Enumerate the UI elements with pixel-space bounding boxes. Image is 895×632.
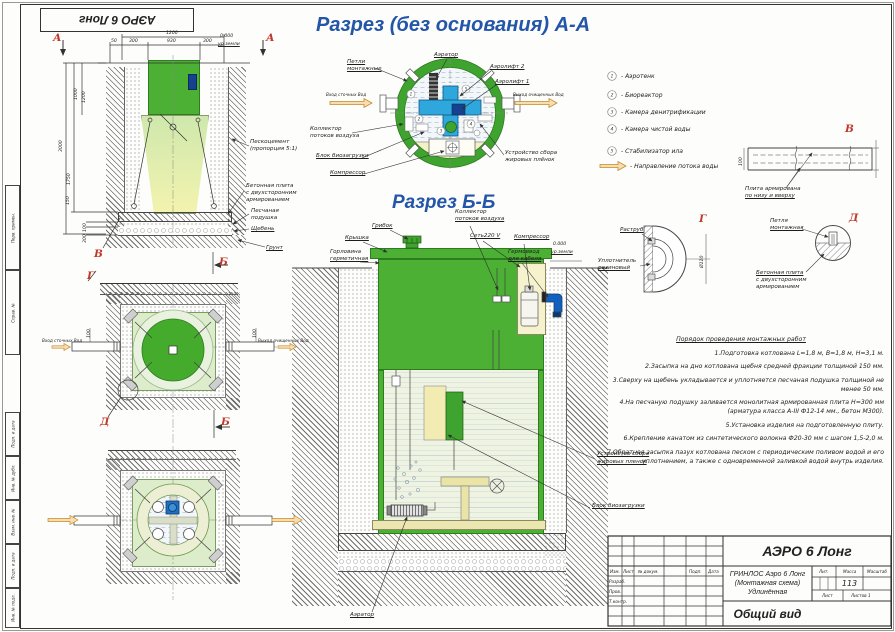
aa-label-bioblock: Блок биозагрузки [316, 153, 369, 160]
elev-dim-930: 930 [167, 39, 176, 45]
note-item: 3.Сверху на щебень укладывается и уплотн… [598, 377, 884, 395]
elev-label-sandcement2: (пропорция 5:1) [250, 146, 297, 153]
aa-label-airlift1: Аэролифт 1 [495, 79, 529, 86]
elev-dim-1200v: 1200 [82, 91, 88, 103]
note-item: 7.Обратная засыпка пазух котлована песко… [598, 449, 884, 467]
aa-label-compressor: Компрессор [330, 170, 365, 177]
svg-text:5: 5 [611, 149, 614, 155]
aa-outlet-label: Выход очищенных Вод [513, 92, 564, 97]
legend-item-4: - Камера чистой воды [621, 126, 690, 134]
detail-mark-v-elev: В [94, 248, 103, 260]
note-item: 1.Подготовка котлована L=1,8 м, B=1,8 м,… [598, 350, 884, 359]
elev-dim-300b: 300 [83, 234, 89, 243]
detail-mark-d: Д [849, 212, 858, 224]
svg-text:4: 4 [611, 127, 614, 133]
title-section-aa: Разрез (без основания) А-А [316, 14, 590, 37]
plan1-dim-100l: 100 [87, 329, 93, 338]
tb-role-razrab: Разраб. [609, 579, 625, 584]
doc-line1: ГРИНЛОС Аэро 6 Лонг [730, 570, 805, 579]
svg-text:1: 1 [410, 92, 413, 97]
elev-dim-1000: 1000 [74, 88, 80, 100]
bb-label-aerator: Аэратор [350, 612, 374, 619]
aa-label-loops1: Петли [347, 59, 365, 66]
elevation-linework [63, 34, 265, 281]
tb-mass-value: 113 [836, 577, 863, 590]
elev-label-cushion1: Песчаная [251, 208, 279, 215]
titleblock-product: АЭРО 6 Лонг [723, 536, 891, 566]
bb-label-lid: Крышка [345, 235, 369, 242]
notes-title: Порядок проведения монтажных работ [598, 336, 884, 345]
view-name: Общий вид [734, 607, 802, 621]
tb-sheets: Листов 1 [851, 593, 871, 598]
tb-head-list: Лист [623, 569, 634, 574]
tb-head-izm: Изм. [610, 569, 620, 574]
elev-dim-300l: 300 [129, 39, 138, 45]
tb-head-data: Дата [708, 569, 719, 574]
detail-v-label1: Плита армирована [745, 186, 801, 193]
svg-text:2: 2 [611, 93, 614, 99]
titleblock-doc: ГРИНЛОС Аэро 6 Лонг (Монтажная схема) Уд… [723, 566, 812, 601]
detail-v-dim100: 100 [739, 157, 745, 166]
elev-label-gravel: Щебень [251, 226, 274, 233]
product-name: АЭРО 6 Лонг [762, 543, 851, 559]
doc-line3: Удлинённая [748, 588, 787, 597]
elev-dim-300r: 300 [203, 39, 212, 45]
bb-label-neck1: Горловина [330, 249, 361, 256]
elev-zero-level: 0.000 [220, 34, 233, 40]
aa-label-collector1: Коллектор [310, 126, 342, 133]
detail-g-seal1: Уплотнитель [598, 258, 636, 265]
detail-g-dim: Ø110 [700, 256, 706, 268]
svg-text:3: 3 [611, 110, 614, 116]
note-item: 5.Установка изделия на подготовленную пл… [598, 422, 884, 431]
legend-flow: - Направление потока воды [630, 163, 718, 171]
legend-numbers: 1 2 3 4 5 [611, 74, 614, 155]
detail-mark-g: Г [699, 213, 706, 225]
bb-label-collector2: потоков воздуха [455, 216, 504, 223]
tb-sheet: Лист [822, 593, 833, 598]
aa-label-collector2: потоков воздуха [310, 133, 359, 140]
svg-text:4: 4 [470, 122, 473, 127]
aa-label-airlift2: Аэролифт 2 [490, 64, 524, 71]
tb-role-tkontr: Т.контр. [609, 599, 627, 604]
plan2-linework [48, 446, 302, 600]
bb-linework [292, 226, 608, 612]
detail-d-plate1: Бетонная плита [756, 270, 803, 277]
detail-v-label2: по низу и вверху [745, 193, 795, 200]
elev-label-plate1: Бетонная плита [246, 183, 293, 190]
elev-dim-150: 150 [66, 196, 72, 205]
detail-d-loop1: Петля [770, 218, 788, 225]
aa-label-fat1: Устройство сбора [505, 150, 557, 157]
detail-d-plate3: армированием [756, 284, 800, 291]
detail-g-seal2: резиновый [598, 265, 630, 272]
installation-notes: Порядок проведения монтажных работ 1.Под… [598, 336, 884, 471]
tb-scale: Масштаб [867, 569, 887, 574]
legend-item-3: - Камера денитрификации [621, 109, 706, 117]
detail-d-linework [802, 226, 851, 273]
bb-zero-level: 0.000 [553, 242, 566, 248]
bb-ground-level: ур.земли [551, 250, 573, 256]
plan1-linework [52, 284, 296, 444]
detail-mark-d-plan: Д [100, 416, 109, 428]
plan1-inlet-label: Вход сточных Вод [42, 338, 82, 343]
doc-line2: (Монтажная схема) [735, 579, 800, 588]
elev-dim-3000: 3000 [59, 140, 65, 152]
elev-ground-level: ур.земли [218, 42, 240, 48]
bb-label-collector1: Коллектор [455, 209, 487, 216]
elev-label-plate2: с двухсторонним [246, 190, 297, 197]
detail-g-socket: Раструб [620, 227, 643, 234]
aa-label-loops2: монтажные [347, 66, 382, 73]
drawing-sheet: Перв. примен. Справ. № Подп. и дата Инв.… [0, 0, 895, 632]
bb-label-bioblock: Блок биозагрузки [592, 503, 645, 510]
legend-item-2: - Биореактор [621, 92, 663, 100]
note-item: 4.На песчаную подушку заливается монолит… [598, 399, 884, 417]
legend-linework [600, 72, 626, 171]
detail-d-plate2: с двухсторонним [756, 277, 807, 284]
detail-mark-v: В [845, 123, 854, 135]
bb-label-neck2: герметичная [330, 256, 368, 263]
elev-label-sandcement: Пескоцемент [250, 139, 289, 146]
plan1-dim-100r: 100 [253, 329, 259, 338]
tb-head-dokum: № докум. [638, 569, 659, 574]
tb-role-prov: Пров. [609, 589, 621, 594]
plan1-outlet-label: Выход очищенных Вод [258, 338, 309, 343]
elev-dim-1750: 1750 [67, 173, 73, 185]
aa-inlet-label: Вход сточных Вод [326, 92, 366, 97]
svg-text:2: 2 [418, 117, 421, 122]
aa-label-aerator: Аэратор [434, 52, 458, 59]
bb-label-compressor: Компрессор [514, 234, 549, 241]
svg-text:5: 5 [465, 87, 468, 92]
section-mark-b-elev: Б [219, 256, 228, 268]
elev-label-plate3: армированием [246, 197, 290, 204]
elev-dim-1200: 1200 [166, 31, 178, 37]
section-mark-a-right: А [266, 32, 275, 44]
section-mark-b-plan: Б [221, 416, 230, 428]
elev-label-cushion2: подушка [251, 215, 277, 222]
section-mark-a-left: А [53, 32, 62, 44]
bb-label-gland1: Гермоввод [508, 249, 540, 256]
elev-dim-50: 50 [111, 39, 117, 45]
titleblock-view: Общий вид [723, 601, 812, 626]
aa-label-fat2: жировых плёнок [505, 157, 555, 164]
legend-item-5: - Стабилизатор ила [621, 148, 683, 156]
mass-value: 113 [842, 579, 857, 588]
bb-label-mushroom: Грибок [372, 223, 393, 230]
note-item: 2.Засыпка на дно котлована щебня средней… [598, 363, 884, 372]
detail-mark-g-elev: Г [87, 270, 94, 282]
elev-dim-100: 100 [83, 223, 89, 232]
detail-v-linework [744, 140, 879, 188]
tb-head-podp: Подп. [689, 569, 702, 574]
bb-label-net220: Сеть220 V [470, 233, 500, 240]
bb-label-gland2: для кабеля [508, 256, 541, 263]
detail-d-loop2: монтажная [770, 225, 803, 232]
tb-mass: Масса [843, 569, 856, 574]
tb-lit: Лит. [819, 569, 829, 574]
note-item: 6.Крепление канатом из синтетического во… [598, 435, 884, 444]
elev-label-soil: Грунт [266, 245, 283, 252]
svg-text:3: 3 [440, 129, 443, 134]
svg-text:1: 1 [611, 74, 614, 80]
legend-item-1: - Аэротенк [621, 73, 655, 81]
